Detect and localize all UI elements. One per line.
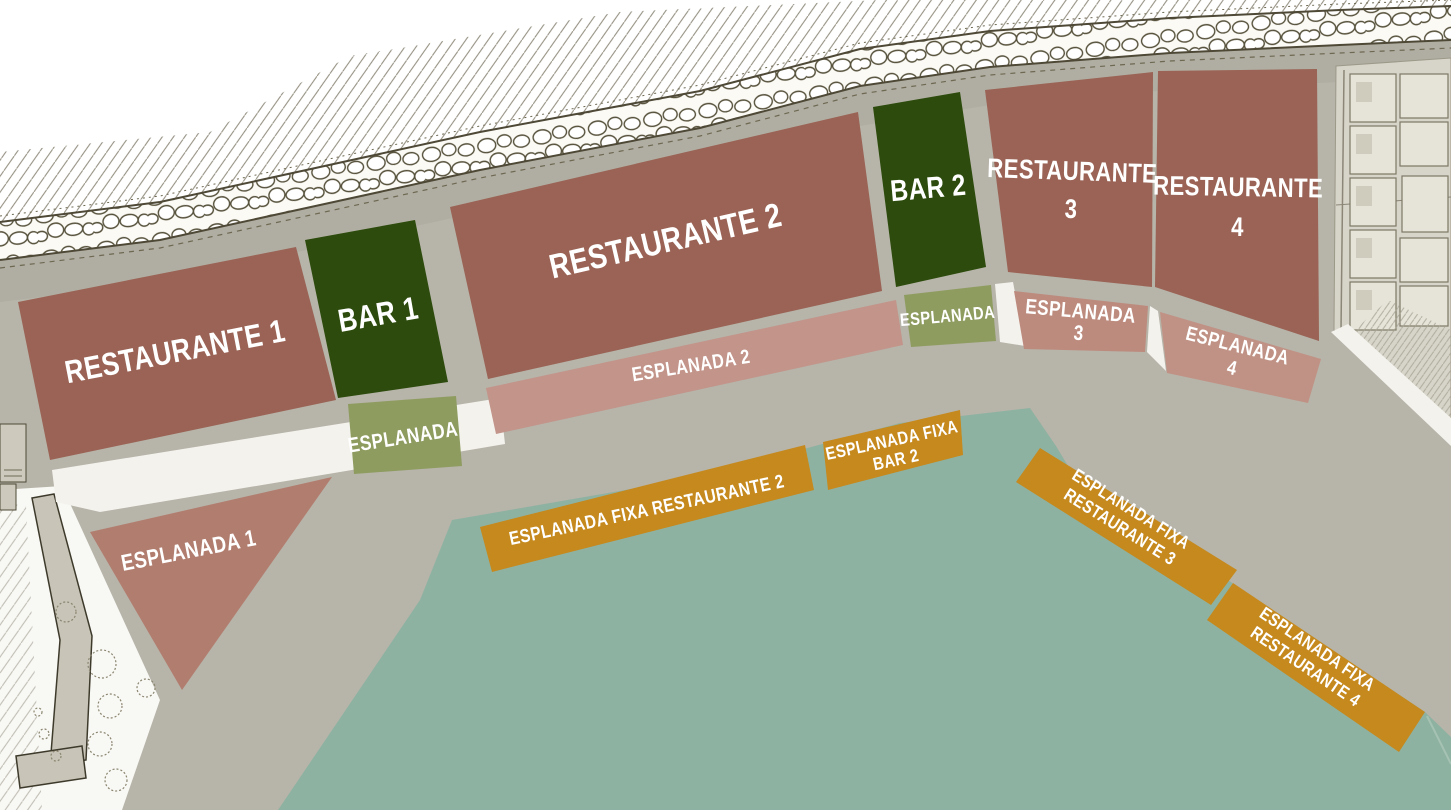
svg-text:4: 4 — [1231, 213, 1244, 243]
site-plan: RESTAURANTE 1 BAR 1 RESTAURANTE 2 BAR 2 … — [0, 0, 1451, 810]
svg-text:RESTAURANTE: RESTAURANTE — [987, 154, 1158, 189]
svg-text:3: 3 — [1064, 195, 1078, 225]
svg-text:3: 3 — [1073, 322, 1085, 346]
bar-2-label: BAR 2 — [889, 167, 968, 207]
svg-text:RESTAURANTE: RESTAURANTE — [1153, 172, 1324, 204]
